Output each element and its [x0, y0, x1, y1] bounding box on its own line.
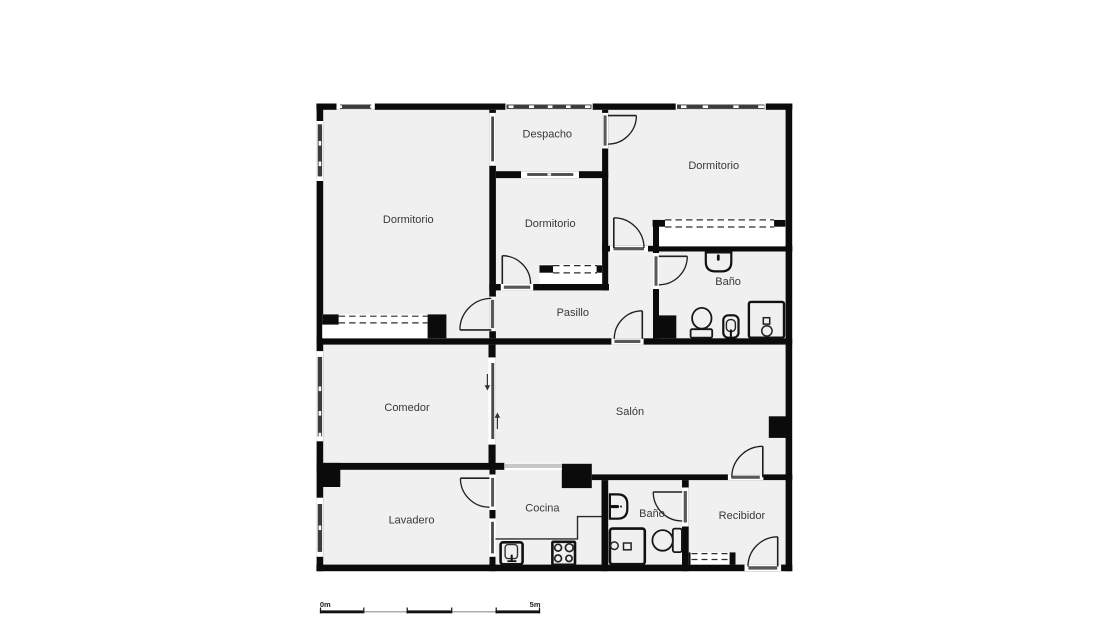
svg-text:Baño: Baño — [639, 508, 665, 520]
svg-text:Comedor: Comedor — [384, 402, 430, 414]
svg-text:0m: 0m — [320, 600, 331, 609]
svg-text:Dormitorio: Dormitorio — [525, 218, 576, 230]
svg-text:Recibidor: Recibidor — [719, 510, 766, 522]
svg-text:Dormitorio: Dormitorio — [383, 214, 434, 226]
svg-text:Baño: Baño — [715, 276, 741, 288]
svg-text:Pasillo: Pasillo — [557, 307, 589, 319]
svg-text:Cocina: Cocina — [525, 502, 560, 514]
svg-text:Despacho: Despacho — [523, 129, 573, 141]
svg-text:Lavadero: Lavadero — [389, 514, 435, 526]
svg-text:5m: 5m — [530, 600, 541, 609]
svg-text:Salón: Salón — [616, 406, 644, 418]
svg-text:Dormitorio: Dormitorio — [688, 160, 739, 172]
